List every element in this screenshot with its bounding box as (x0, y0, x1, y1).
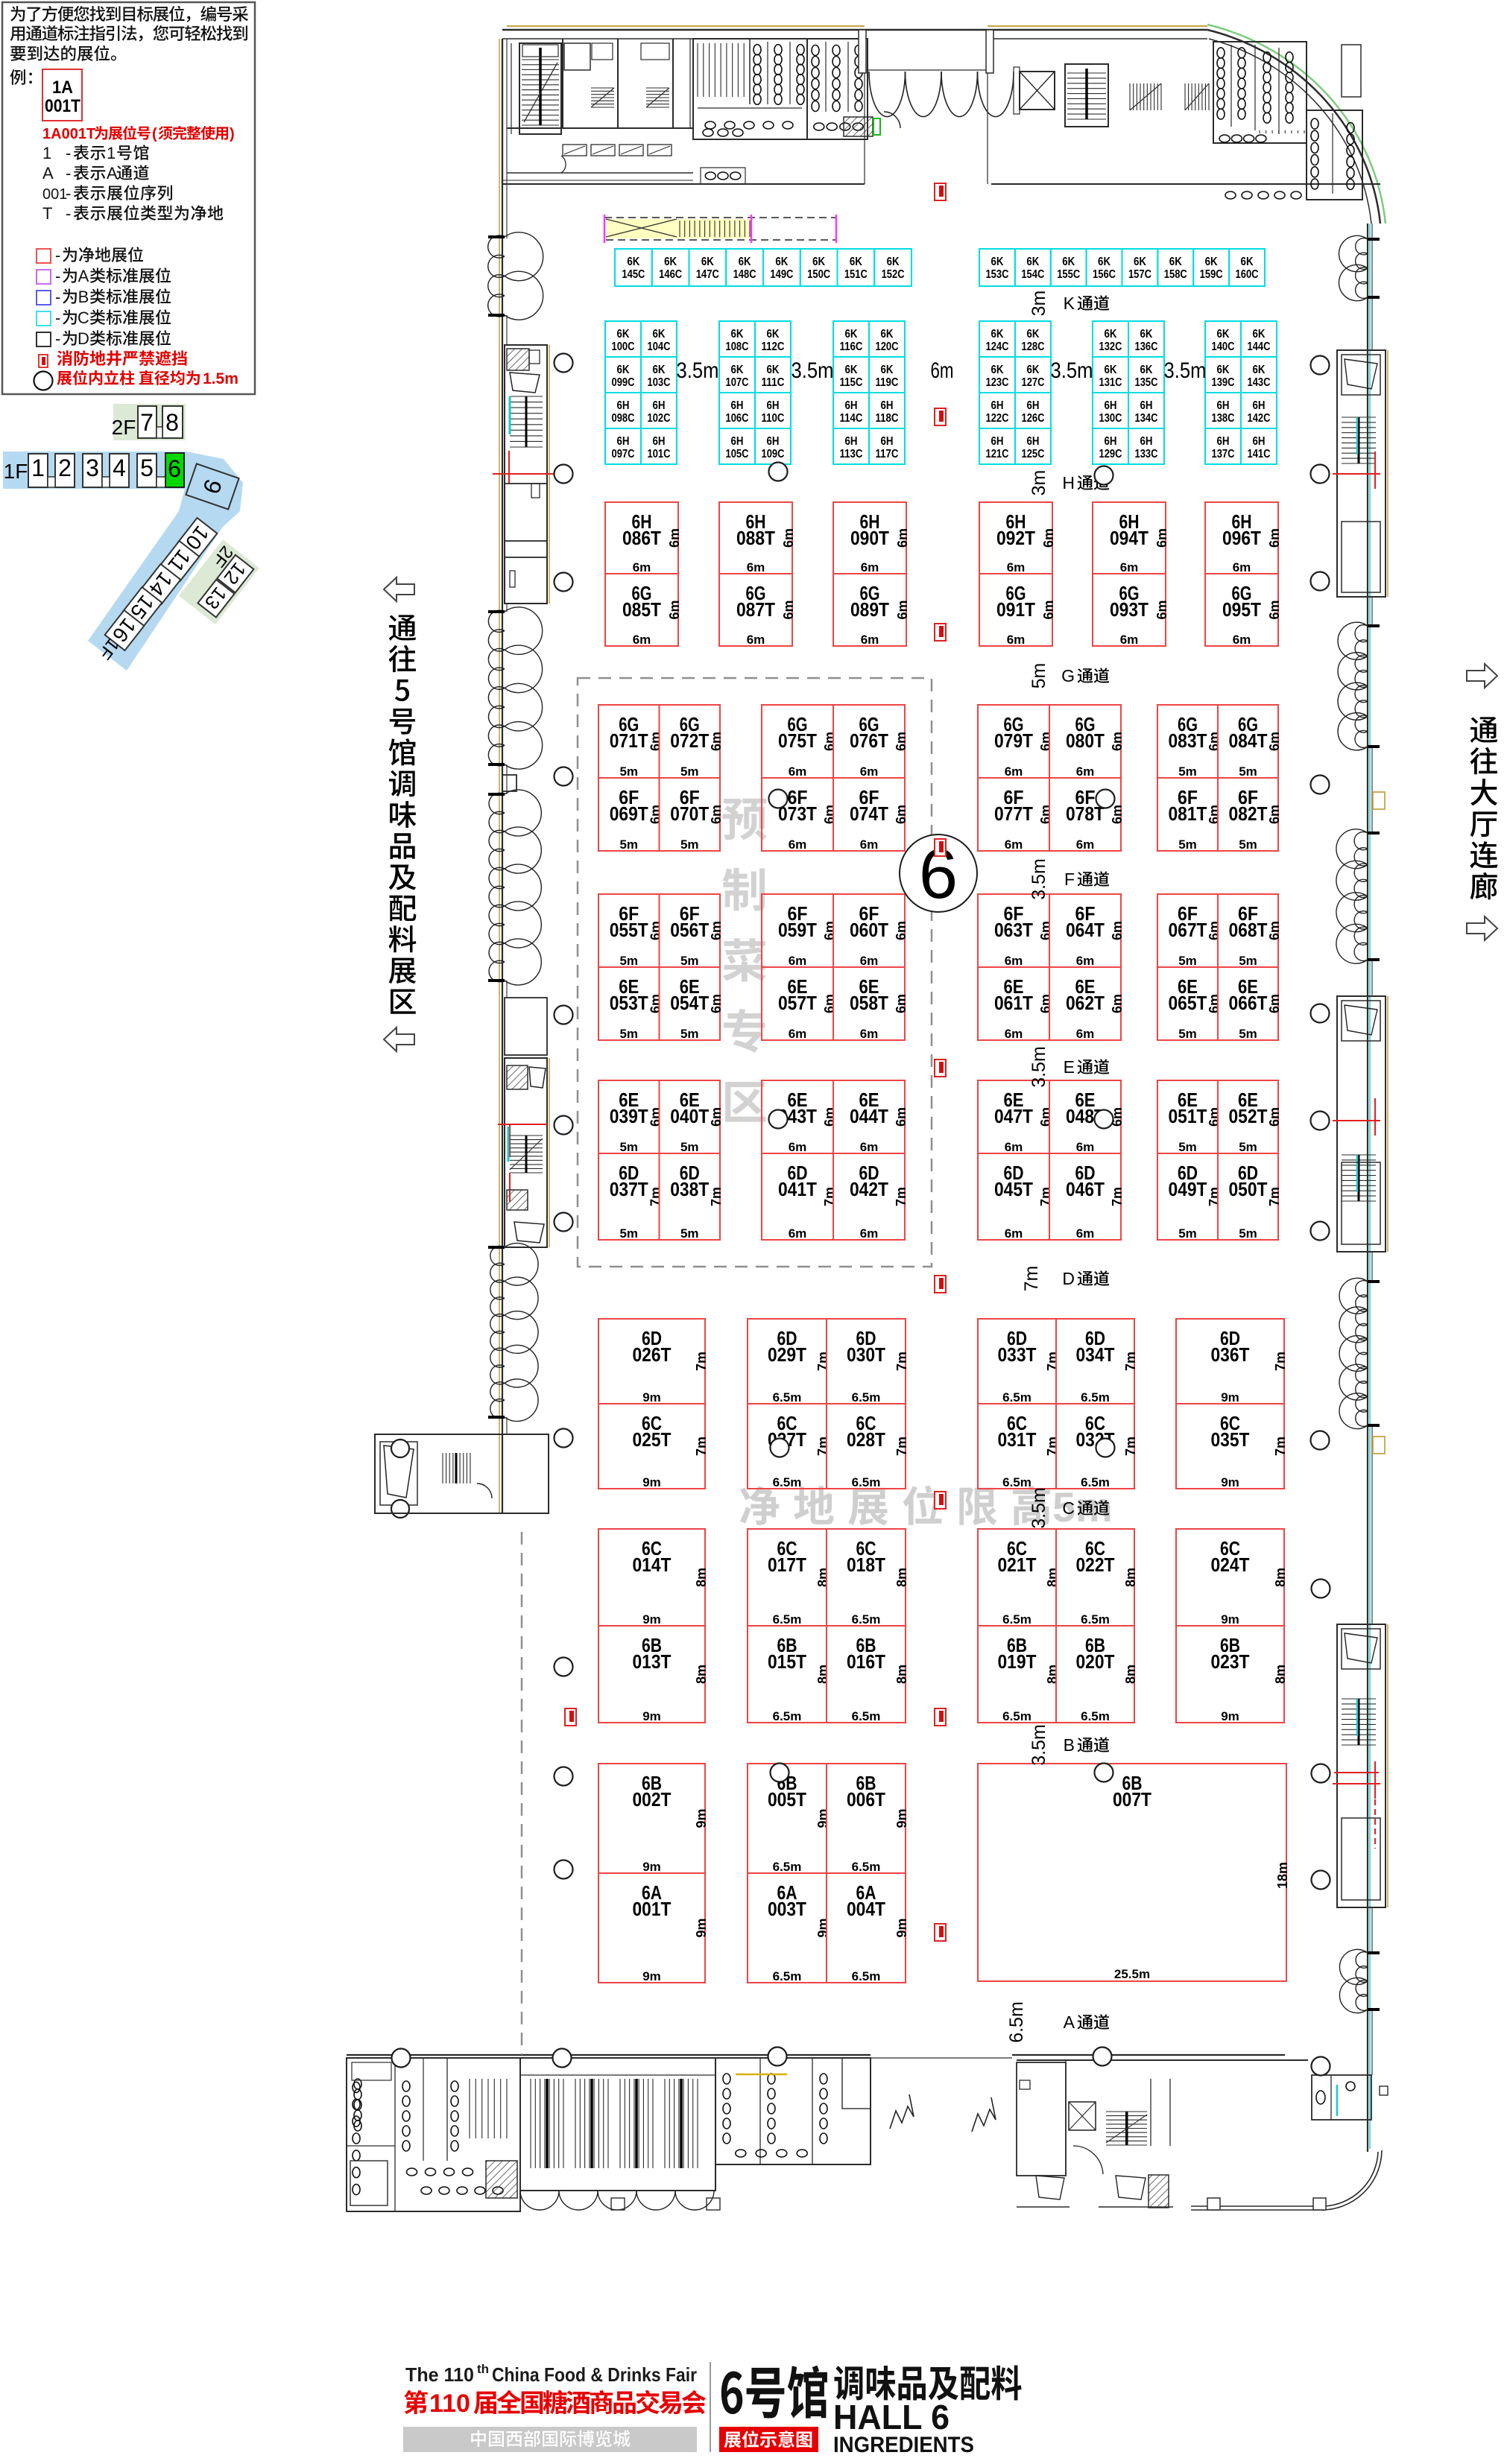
svg-text:5m: 5m (1239, 1226, 1257, 1241)
svg-text:9m: 9m (642, 1475, 661, 1489)
svg-text:079T: 079T (994, 731, 1033, 752)
svg-text:6m: 6m (1007, 560, 1026, 574)
svg-text:7m: 7m (894, 1187, 909, 1206)
svg-text:144C: 144C (1248, 341, 1271, 353)
svg-text:112C: 112C (762, 341, 785, 353)
svg-text:6.5m: 6.5m (773, 1860, 802, 1874)
svg-text:K: K (1064, 294, 1075, 313)
svg-text:037T: 037T (610, 1179, 648, 1200)
svg-text:050T: 050T (1229, 1179, 1268, 1200)
svg-text:091T: 091T (996, 600, 1035, 621)
svg-text:126C: 126C (1022, 412, 1045, 425)
svg-text:023T: 023T (1211, 1652, 1250, 1673)
svg-text:125C: 125C (1022, 448, 1045, 460)
svg-text:060T: 060T (850, 920, 888, 941)
svg-text:085T: 085T (622, 600, 661, 621)
svg-text:113C: 113C (840, 448, 863, 460)
svg-text:047T: 047T (994, 1106, 1033, 1127)
svg-text:5m: 5m (1239, 764, 1257, 779)
svg-text:7m: 7m (1123, 1437, 1138, 1456)
svg-text:040T: 040T (670, 1106, 709, 1127)
svg-text:074T: 074T (850, 804, 888, 825)
svg-text:3.5m: 3.5m (1029, 1046, 1049, 1088)
svg-text:014T: 014T (633, 1555, 672, 1576)
svg-text:5m: 5m (619, 1226, 638, 1241)
svg-text:7m: 7m (1045, 1437, 1060, 1456)
svg-text:5m: 5m (1178, 1140, 1197, 1154)
svg-text:The 110: The 110 (405, 2363, 474, 2386)
svg-text:5m: 5m (1239, 1027, 1257, 1041)
svg-text:069T: 069T (610, 804, 648, 825)
svg-text:6m: 6m (648, 805, 663, 824)
svg-text:5m: 5m (619, 837, 638, 852)
svg-text:6m: 6m (1267, 732, 1282, 751)
svg-text:6m: 6m (1005, 764, 1023, 779)
svg-text:155C: 155C (1057, 268, 1080, 281)
svg-text:150C: 150C (807, 268, 830, 281)
svg-text:6K: 6K (1062, 256, 1075, 268)
svg-text:044T: 044T (850, 1106, 888, 1127)
svg-text:158C: 158C (1164, 268, 1187, 281)
svg-text:6K: 6K (1169, 256, 1183, 268)
svg-text:9m: 9m (894, 1918, 909, 1937)
svg-text:7m: 7m (1038, 1187, 1053, 1206)
svg-text:T: T (42, 204, 52, 223)
svg-text:006T: 006T (847, 1790, 885, 1811)
svg-text:8: 8 (165, 409, 179, 436)
svg-text:015T: 015T (768, 1652, 806, 1673)
svg-text:6H: 6H (1105, 435, 1117, 448)
svg-text:071T: 071T (610, 731, 648, 752)
svg-text:6K: 6K (701, 256, 715, 268)
svg-text:6K: 6K (627, 256, 640, 268)
svg-text:103C: 103C (648, 376, 671, 389)
svg-text:5m: 5m (680, 1027, 699, 1041)
svg-text:154C: 154C (1021, 268, 1044, 281)
svg-text:6K: 6K (1105, 364, 1118, 376)
svg-text:096T: 096T (1222, 528, 1261, 549)
svg-text:6H: 6H (1140, 435, 1153, 448)
svg-text:7m: 7m (694, 1352, 709, 1371)
svg-text:6m: 6m (648, 732, 663, 751)
svg-text:9m: 9m (642, 1390, 661, 1404)
svg-text:6m: 6m (633, 560, 651, 574)
svg-text:6m: 6m (860, 954, 879, 968)
svg-text:-: - (55, 267, 60, 285)
svg-text:6K: 6K (845, 364, 859, 376)
svg-text:6m: 6m (1110, 921, 1125, 940)
svg-text:5m: 5m (1178, 1226, 1197, 1241)
svg-text:118C: 118C (876, 412, 899, 425)
svg-text:H: H (1062, 473, 1075, 493)
svg-text:6: 6 (168, 455, 181, 482)
svg-text:6K: 6K (1026, 256, 1040, 268)
svg-text:123C: 123C (986, 376, 1009, 389)
svg-text:7m: 7m (1045, 1352, 1060, 1371)
svg-text:6m: 6m (822, 994, 837, 1013)
svg-text:134C: 134C (1135, 412, 1158, 425)
svg-text:062T: 062T (1066, 993, 1105, 1014)
svg-text:122C: 122C (986, 412, 1009, 425)
svg-text:6m: 6m (822, 1107, 837, 1127)
svg-text:6H: 6H (1105, 399, 1117, 412)
svg-text:094T: 094T (1110, 528, 1149, 549)
svg-text:1: 1 (42, 144, 51, 162)
svg-text:E: E (1064, 1057, 1075, 1077)
svg-text:5m: 5m (680, 954, 699, 968)
svg-text:124C: 124C (986, 341, 1009, 353)
svg-text:098C: 098C (612, 412, 635, 425)
svg-text:8m: 8m (1123, 1665, 1138, 1684)
svg-text:9m: 9m (815, 1918, 830, 1937)
svg-text:F: F (1064, 870, 1075, 889)
svg-text:8m: 8m (815, 1665, 830, 1684)
svg-text:6m: 6m (1207, 805, 1222, 824)
svg-text:075T: 075T (778, 731, 817, 752)
svg-text:6.5m: 6.5m (1081, 1475, 1110, 1489)
svg-text:139C: 139C (1212, 376, 1235, 389)
svg-text:001: 001 (42, 186, 67, 203)
svg-text:099C: 099C (612, 376, 635, 389)
svg-text:6.5m: 6.5m (1081, 1612, 1110, 1627)
svg-text:110: 110 (429, 2389, 470, 2418)
svg-text:3.5m: 3.5m (1029, 1487, 1049, 1529)
svg-text:042T: 042T (850, 1179, 888, 1200)
svg-text:6m: 6m (747, 560, 765, 574)
svg-text:6m: 6m (894, 1107, 909, 1127)
svg-text:053T: 053T (610, 993, 648, 1014)
svg-text:7m: 7m (894, 1352, 909, 1371)
svg-text:6m: 6m (789, 1226, 807, 1241)
svg-text:9m: 9m (642, 1860, 661, 1874)
svg-text:6K: 6K (653, 328, 666, 341)
svg-text:104C: 104C (648, 341, 671, 353)
svg-text:087T: 087T (736, 600, 775, 621)
svg-text:5m: 5m (619, 1140, 638, 1154)
svg-text:6m: 6m (648, 921, 663, 940)
svg-text:6m: 6m (1154, 600, 1169, 619)
svg-text:058T: 058T (850, 993, 888, 1014)
svg-text:001T: 001T (45, 96, 80, 116)
svg-text:128C: 128C (1022, 341, 1045, 353)
svg-text:117C: 117C (876, 448, 899, 460)
svg-text:6.5m: 6.5m (852, 1612, 881, 1627)
svg-text:076T: 076T (850, 731, 888, 752)
svg-text:6.5m: 6.5m (1002, 1612, 1031, 1627)
svg-text:6.5m: 6.5m (852, 1390, 881, 1404)
svg-text:135C: 135C (1135, 376, 1158, 389)
svg-text:9m: 9m (642, 1709, 661, 1723)
svg-text:107C: 107C (726, 376, 749, 389)
svg-text:(: ( (152, 126, 157, 142)
svg-text:003T: 003T (768, 1899, 806, 1920)
svg-text:065T: 065T (1169, 993, 1207, 1014)
svg-text:China Food & Drinks Fair: China Food & Drinks Fair (492, 2363, 697, 2386)
svg-text:036T: 036T (1211, 1345, 1250, 1366)
svg-text:6m: 6m (1110, 805, 1125, 824)
svg-text:6H: 6H (767, 399, 780, 412)
svg-text:020T: 020T (1076, 1652, 1115, 1673)
svg-text:6m: 6m (860, 837, 879, 852)
svg-text:6m: 6m (1038, 805, 1053, 824)
svg-text:6.5m: 6.5m (1002, 1390, 1031, 1404)
svg-text:6K: 6K (991, 364, 1005, 376)
svg-text:6m: 6m (1207, 921, 1222, 940)
svg-text:9m: 9m (1221, 1390, 1239, 1404)
svg-text:6.5m: 6.5m (852, 1969, 881, 1983)
svg-text:A: A (42, 164, 54, 183)
svg-text:-: - (66, 184, 71, 203)
svg-text:5m: 5m (1178, 764, 1197, 779)
svg-text:6m: 6m (1038, 732, 1053, 751)
svg-text:063T: 063T (994, 920, 1033, 941)
svg-text:C: C (78, 308, 89, 327)
svg-text:6m: 6m (789, 764, 807, 779)
svg-text:6m: 6m (1233, 633, 1251, 647)
svg-text:6m: 6m (648, 1107, 663, 1127)
svg-text:057T: 057T (778, 993, 817, 1014)
svg-text:6.5m: 6.5m (773, 1612, 802, 1627)
svg-text:6.5m: 6.5m (1002, 1475, 1031, 1489)
svg-text:9m: 9m (642, 1969, 661, 1983)
svg-text:8m: 8m (894, 1568, 909, 1587)
svg-text:105C: 105C (726, 448, 749, 460)
svg-text:6m: 6m (1120, 560, 1139, 574)
svg-text:6m: 6m (1267, 921, 1282, 940)
svg-text:160C: 160C (1236, 268, 1259, 281)
svg-text:6K: 6K (1241, 256, 1254, 268)
svg-text:1A: 1A (52, 77, 73, 98)
svg-text:9m: 9m (1221, 1475, 1239, 1489)
svg-text:051T: 051T (1169, 1106, 1207, 1127)
svg-text:6.5m: 6.5m (773, 1709, 802, 1723)
svg-text:6m: 6m (709, 805, 724, 824)
svg-text:089T: 089T (850, 600, 889, 621)
svg-text:7m: 7m (1273, 1437, 1288, 1456)
svg-text:6K: 6K (1140, 364, 1154, 376)
svg-text:143C: 143C (1248, 376, 1271, 389)
svg-text:5m: 5m (1239, 954, 1257, 968)
svg-text:4: 4 (113, 455, 126, 481)
svg-text:6m: 6m (781, 600, 796, 619)
svg-text:25.5m: 25.5m (1114, 1967, 1150, 1981)
svg-text:7m: 7m (815, 1352, 830, 1371)
svg-text:141C: 141C (1248, 448, 1271, 460)
svg-text:7m: 7m (1110, 1187, 1125, 1206)
svg-text:6K: 6K (1253, 364, 1266, 376)
svg-text:6m: 6m (1110, 994, 1125, 1013)
svg-text:6H: 6H (1140, 399, 1153, 412)
svg-text:6K: 6K (653, 364, 666, 376)
svg-text:9m: 9m (1221, 1612, 1239, 1627)
svg-text:6K: 6K (1134, 256, 1147, 268)
svg-text:3.5m: 3.5m (677, 358, 719, 383)
svg-text:6.5m: 6.5m (773, 1475, 802, 1489)
svg-text:6m: 6m (1076, 954, 1095, 968)
svg-text:D: D (1062, 1269, 1075, 1288)
svg-text:6K: 6K (664, 256, 677, 268)
svg-text:6m: 6m (1267, 805, 1282, 824)
svg-text:7m: 7m (709, 1187, 724, 1206)
svg-text:6m: 6m (789, 837, 807, 852)
svg-text:114C: 114C (840, 412, 863, 425)
svg-text:6H: 6H (845, 399, 858, 412)
svg-text:6m: 6m (1267, 1107, 1282, 1127)
svg-text:8m: 8m (694, 1568, 709, 1587)
svg-text:1F: 1F (4, 460, 28, 483)
svg-text:6K: 6K (767, 328, 780, 341)
svg-text:5m: 5m (619, 764, 638, 779)
svg-text:5m: 5m (619, 954, 638, 968)
svg-text:6K: 6K (887, 256, 900, 268)
svg-text:7m: 7m (1123, 1352, 1138, 1371)
svg-text:7m: 7m (1207, 1187, 1222, 1206)
svg-text:6H: 6H (731, 435, 744, 448)
svg-text:5m: 5m (1178, 837, 1197, 852)
svg-text:054T: 054T (670, 993, 709, 1014)
svg-text:3m: 3m (1029, 470, 1049, 496)
svg-text:6m: 6m (1005, 1226, 1023, 1241)
svg-text:016T: 016T (847, 1652, 885, 1673)
svg-text:6H: 6H (617, 399, 630, 412)
svg-text:6H: 6H (881, 435, 894, 448)
svg-text:6m: 6m (1005, 1140, 1023, 1154)
svg-text:7m: 7m (1021, 1266, 1042, 1292)
svg-text:035T: 035T (1211, 1430, 1250, 1451)
svg-text:th: th (477, 2362, 489, 2376)
svg-text:066T: 066T (1229, 993, 1268, 1014)
svg-text:038T: 038T (670, 1179, 709, 1200)
svg-text:6m: 6m (789, 1027, 807, 1041)
svg-text:7m: 7m (648, 1187, 663, 1206)
svg-text:-: - (66, 164, 71, 183)
svg-text:): ) (230, 126, 235, 142)
svg-text:108C: 108C (726, 341, 749, 353)
svg-text:120C: 120C (876, 341, 899, 353)
svg-text:2: 2 (58, 455, 72, 481)
svg-text:7: 7 (140, 409, 154, 436)
svg-text:6m: 6m (1076, 1140, 1095, 1154)
svg-text:052T: 052T (1229, 1106, 1268, 1127)
svg-text:HALL 6: HALL 6 (833, 2398, 950, 2436)
svg-text:046T: 046T (1066, 1179, 1105, 1200)
svg-text:6m: 6m (861, 633, 879, 647)
svg-text:6K: 6K (881, 364, 894, 376)
svg-text:5m: 5m (680, 1226, 699, 1241)
svg-text:110C: 110C (762, 412, 785, 425)
svg-text:6m: 6m (860, 1027, 879, 1041)
svg-text:5m: 5m (619, 1027, 638, 1041)
svg-text:8m: 8m (694, 1665, 709, 1684)
svg-text:6m: 6m (1041, 528, 1056, 548)
svg-text:6K: 6K (767, 364, 780, 376)
svg-text:6H: 6H (653, 399, 666, 412)
svg-text:D: D (78, 329, 89, 348)
svg-text:5m: 5m (1239, 837, 1257, 852)
svg-text:6m: 6m (1267, 528, 1282, 548)
svg-text:039T: 039T (610, 1106, 648, 1127)
svg-text:6K: 6K (1027, 364, 1040, 376)
svg-text:6K: 6K (845, 328, 859, 341)
svg-text:138C: 138C (1212, 412, 1235, 425)
svg-text:6m: 6m (1267, 600, 1282, 619)
svg-text:6H: 6H (731, 399, 744, 412)
svg-text:068T: 068T (1229, 920, 1268, 941)
svg-text:6m: 6m (1038, 994, 1053, 1013)
svg-text:073T: 073T (778, 804, 817, 825)
svg-text:031T: 031T (998, 1430, 1037, 1451)
svg-text:070T: 070T (670, 804, 709, 825)
svg-text:-: - (66, 204, 71, 223)
svg-text:6.5m: 6.5m (852, 1475, 881, 1489)
svg-text:084T: 084T (1229, 731, 1268, 752)
svg-text:8m: 8m (1045, 1568, 1060, 1587)
svg-text:082T: 082T (1229, 804, 1268, 825)
svg-text:090T: 090T (850, 528, 889, 549)
svg-text:033T: 033T (998, 1345, 1037, 1366)
svg-text:6m: 6m (648, 994, 663, 1013)
svg-text:6K: 6K (1027, 328, 1040, 341)
svg-text:6m: 6m (894, 805, 909, 824)
svg-text:6m: 6m (747, 633, 765, 647)
svg-text:6K: 6K (1140, 328, 1154, 341)
svg-text:115C: 115C (840, 376, 863, 389)
svg-text:116C: 116C (840, 341, 863, 353)
svg-text:6m: 6m (861, 560, 879, 574)
svg-text:102C: 102C (648, 412, 671, 425)
svg-text:5: 5 (140, 455, 154, 481)
svg-text:6K: 6K (991, 256, 1004, 268)
svg-text:055T: 055T (610, 920, 648, 941)
svg-text:142C: 142C (1248, 412, 1271, 425)
svg-text:086T: 086T (622, 528, 661, 549)
svg-text:067T: 067T (1169, 920, 1207, 941)
svg-text:6m: 6m (1110, 732, 1125, 751)
svg-text:6K: 6K (1098, 256, 1111, 268)
svg-text:6m: 6m (860, 764, 879, 779)
svg-text:2F: 2F (112, 416, 136, 439)
svg-text:7m: 7m (822, 1187, 837, 1206)
svg-text:001T: 001T (633, 1899, 672, 1920)
svg-text:6m: 6m (709, 921, 724, 940)
svg-text:6m: 6m (1041, 600, 1056, 619)
svg-text:002T: 002T (633, 1790, 672, 1811)
svg-text:3.5m: 3.5m (792, 358, 834, 383)
svg-text:6H: 6H (1027, 399, 1040, 412)
svg-text:3.5m: 3.5m (1029, 858, 1049, 900)
svg-text:6K: 6K (775, 256, 789, 268)
svg-text:6m: 6m (1038, 921, 1053, 940)
svg-text:024T: 024T (1211, 1555, 1250, 1576)
svg-text:041T: 041T (778, 1179, 817, 1200)
svg-text:6m: 6m (894, 921, 909, 940)
svg-text:6m: 6m (1267, 994, 1282, 1013)
svg-text:8m: 8m (894, 1665, 909, 1684)
svg-text:6m: 6m (1076, 764, 1095, 779)
svg-text:6m: 6m (1076, 1226, 1095, 1241)
svg-text:7m: 7m (694, 1437, 709, 1456)
svg-text:6.5m: 6.5m (773, 1969, 802, 1983)
svg-text:6.5m: 6.5m (1002, 1709, 1031, 1723)
svg-text:6m: 6m (1207, 994, 1222, 1013)
svg-text:132C: 132C (1099, 341, 1122, 353)
svg-text:6H: 6H (1253, 399, 1266, 412)
svg-text:045T: 045T (994, 1179, 1033, 1200)
svg-text:029T: 029T (768, 1345, 806, 1366)
svg-text:6H: 6H (1027, 435, 1040, 448)
svg-text:059T: 059T (778, 920, 817, 941)
svg-text:5m: 5m (1239, 1140, 1257, 1154)
